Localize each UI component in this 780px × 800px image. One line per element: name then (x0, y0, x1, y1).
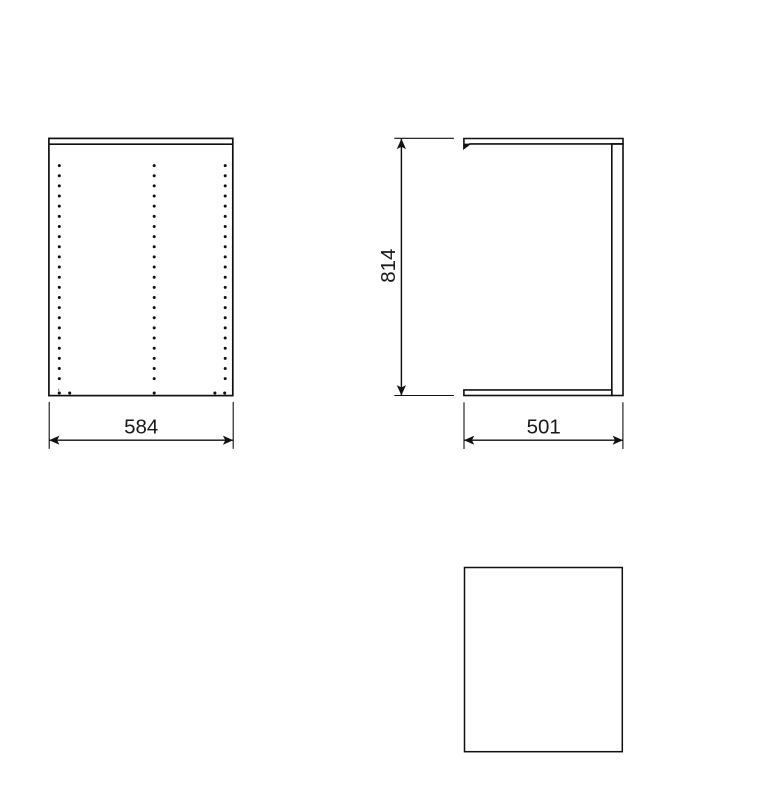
svg-text:584: 584 (124, 415, 158, 438)
svg-text:501: 501 (527, 416, 561, 439)
svg-text:814: 814 (377, 249, 400, 283)
